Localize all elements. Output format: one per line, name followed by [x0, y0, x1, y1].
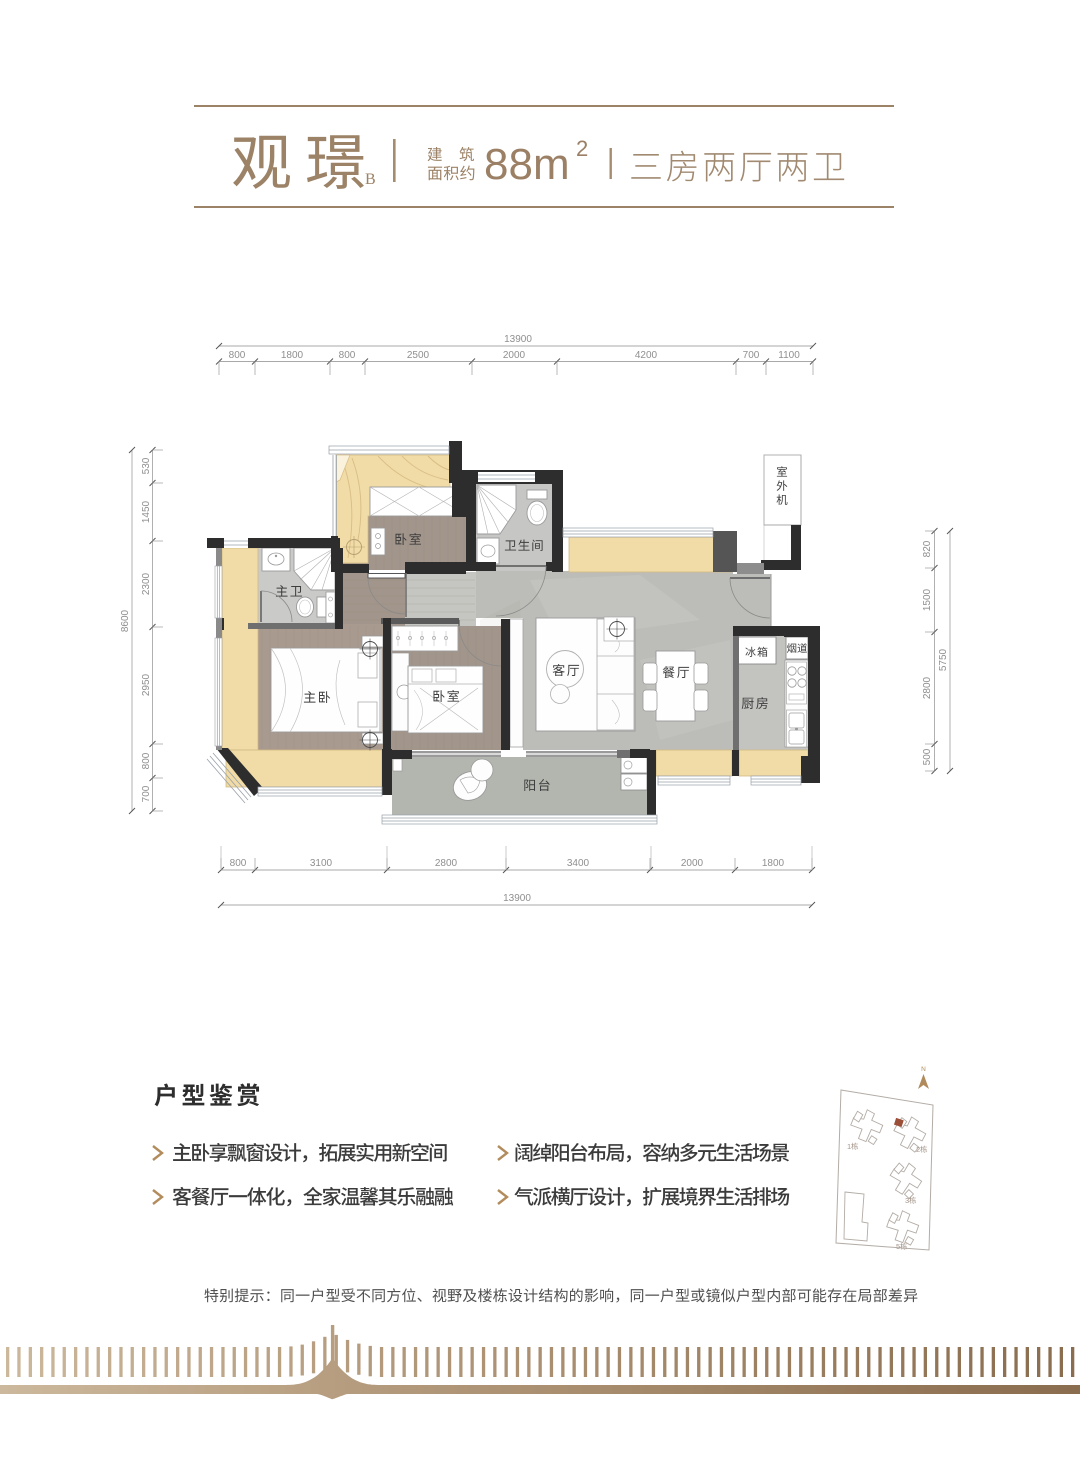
svg-text:B: B [365, 171, 376, 188]
svg-text:13900: 13900 [504, 334, 532, 345]
svg-text:530: 530 [141, 457, 152, 474]
svg-text:2500: 2500 [407, 350, 430, 361]
svg-text:1450: 1450 [141, 500, 152, 523]
svg-text:700: 700 [743, 350, 760, 361]
svg-text:N: N [921, 1066, 926, 1073]
svg-text:1800: 1800 [281, 350, 304, 361]
svg-text:500: 500 [922, 748, 933, 765]
svg-text:2: 2 [916, 1145, 920, 1154]
svg-text:2300: 2300 [141, 572, 152, 595]
svg-text:3: 3 [905, 1196, 909, 1205]
svg-text:3400: 3400 [567, 858, 590, 869]
svg-text:800: 800 [230, 858, 247, 869]
svg-text:4200: 4200 [635, 350, 658, 361]
svg-text:700: 700 [141, 785, 152, 802]
svg-text:2: 2 [576, 136, 588, 161]
svg-text:5750: 5750 [938, 648, 949, 671]
svg-text:2800: 2800 [435, 858, 458, 869]
svg-text:1: 1 [847, 1142, 851, 1151]
svg-text:800: 800 [229, 350, 246, 361]
svg-text:820: 820 [922, 540, 933, 557]
svg-text:2800: 2800 [922, 676, 933, 699]
svg-text:2000: 2000 [681, 858, 704, 869]
svg-text:1800: 1800 [762, 858, 785, 869]
svg-text:3100: 3100 [310, 858, 333, 869]
svg-text:1100: 1100 [778, 350, 800, 361]
svg-text:5: 5 [896, 1242, 900, 1251]
svg-text:8600: 8600 [120, 609, 131, 632]
svg-text:2000: 2000 [503, 350, 526, 361]
svg-text:13900: 13900 [503, 893, 531, 904]
svg-text:800: 800 [141, 752, 152, 769]
svg-text:1500: 1500 [922, 588, 933, 611]
svg-text:800: 800 [339, 350, 356, 361]
svg-text:2950: 2950 [141, 673, 152, 696]
svg-text:88m: 88m [484, 140, 570, 189]
